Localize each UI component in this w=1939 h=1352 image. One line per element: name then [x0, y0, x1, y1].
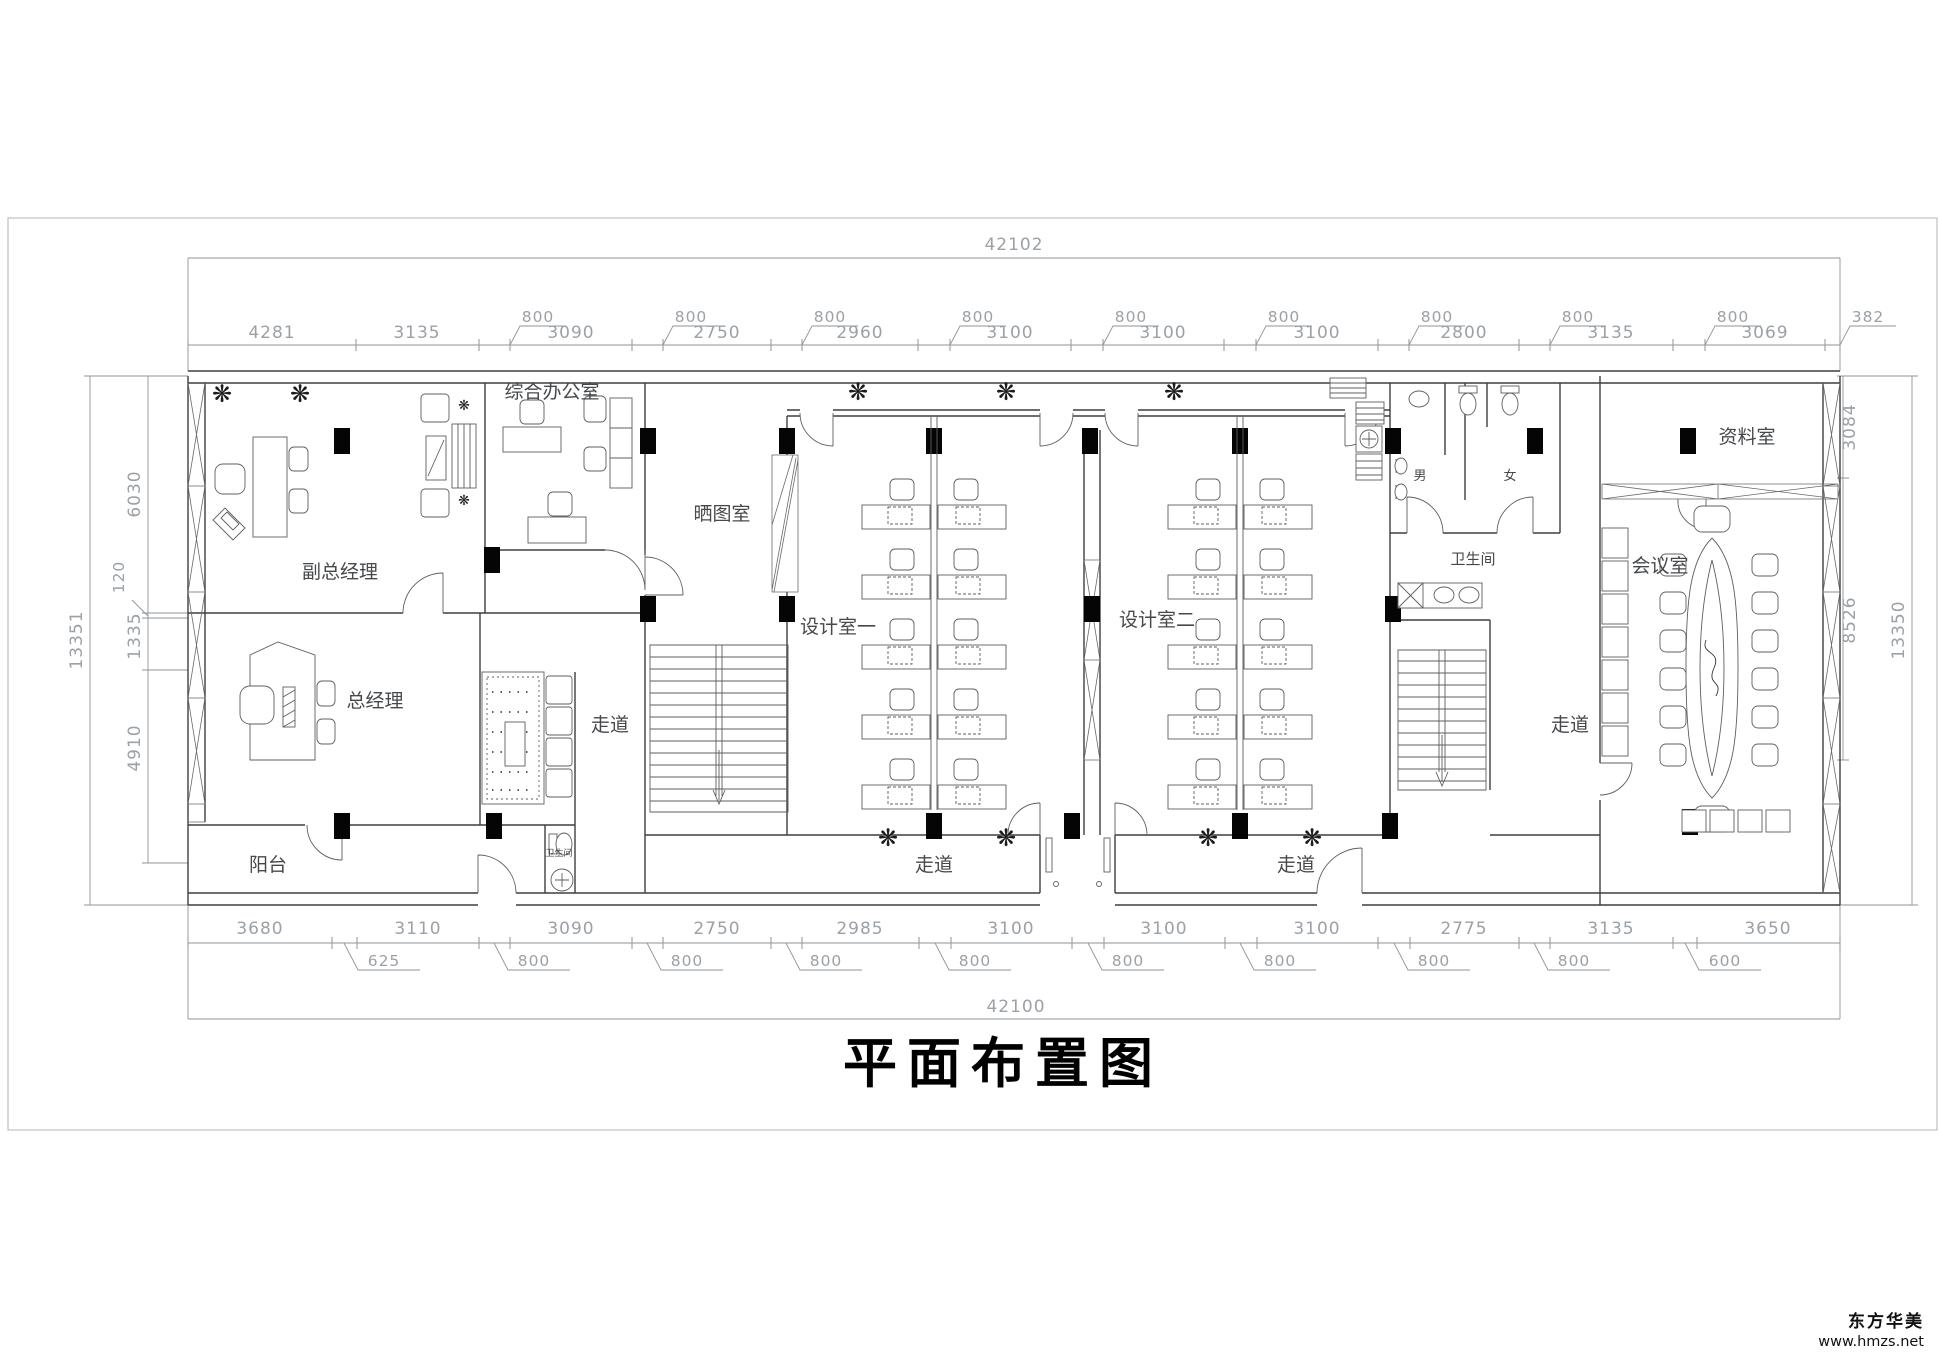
dim-label: 4281: [248, 323, 295, 343]
column: [779, 428, 795, 454]
dim-label: 2750: [693, 919, 740, 939]
workstation-pair: [862, 479, 1006, 529]
plant-icon: ❋: [996, 824, 1016, 852]
plant-icon: ❋: [212, 380, 232, 408]
dim-label: 42102: [984, 235, 1043, 255]
plant-icon: ❋: [1302, 824, 1322, 852]
plant-icon: ❋: [848, 378, 868, 406]
toilet-icon: [1501, 386, 1519, 415]
column: [1084, 596, 1100, 622]
dim-label: 1335: [125, 612, 145, 659]
door-arcs: [307, 413, 1706, 893]
dim-label: 4910: [125, 724, 145, 771]
dim-label: 800: [1264, 952, 1297, 970]
floor-plan-drawing: 42102 42100 4281 3135 800 3090 800 2750 …: [0, 0, 1939, 1352]
floor-plan-page: 42102 42100 4281 3135 800 3090 800 2750 …: [0, 0, 1939, 1352]
dim-label: 2960: [836, 323, 883, 343]
plant-icon: ❋: [458, 398, 470, 414]
room-label-corridor: 走道: [591, 714, 629, 736]
column: [484, 547, 500, 573]
plant-icon: ❋: [996, 378, 1016, 406]
room-label-male: 男: [1413, 469, 1426, 484]
dim-label: 3110: [394, 919, 441, 939]
column: [1527, 428, 1543, 454]
room-label-female: 女: [1503, 468, 1516, 484]
room-label-meeting: 会议室: [1631, 555, 1688, 577]
dim-label: 120: [110, 561, 128, 594]
room-label-restroom: 卫生间: [1450, 550, 1495, 568]
dim-label: 800: [671, 952, 704, 970]
dim-label: 3090: [547, 323, 594, 343]
dimension-layer: 42102 42100 4281 3135 800 3090 800 2750 …: [67, 235, 1918, 1019]
small-bath-fixtures: [549, 833, 573, 891]
dim-label: 3100: [1293, 323, 1340, 343]
dim-label: 625: [368, 952, 401, 970]
column: [1385, 428, 1401, 454]
column: [1064, 813, 1080, 839]
column: [926, 428, 942, 454]
workstation-pair: [1168, 479, 1312, 529]
page-title: 平面布置图: [843, 1034, 1163, 1094]
column: [640, 596, 656, 622]
room-label-archive: 资料室: [1718, 426, 1775, 448]
restroom-fixtures: [1330, 378, 1519, 608]
plant-icon: ❋: [1198, 824, 1218, 852]
dim-label: 3100: [986, 323, 1033, 343]
dim-label: 800: [1418, 952, 1451, 970]
entry-door-leaves: [1046, 838, 1110, 887]
workstation-pair: [862, 759, 1006, 809]
dim-label: 2985: [836, 919, 883, 939]
dim-label: 3100: [1139, 323, 1186, 343]
dim-label: 800: [1112, 952, 1145, 970]
dim-label: 3650: [1744, 919, 1791, 939]
toilet-icon: [1459, 386, 1477, 415]
dim-label: 13351: [67, 610, 87, 669]
column: [1232, 813, 1248, 839]
general-office-furniture: [503, 396, 632, 543]
dim-label: 800: [959, 952, 992, 970]
dim-label: 3100: [987, 919, 1034, 939]
watermark-url: www.hmzs.net: [1818, 1334, 1924, 1350]
dim-label: 3069: [1741, 323, 1788, 343]
plant-icon: ❋: [1164, 378, 1184, 406]
column: [640, 428, 656, 454]
room-label-balcony: 阳台: [249, 854, 287, 876]
room-labels: 副总经理 综合办公室 晒图室 设计室一 设计室二 资料室 会议室 总经理 阳台 …: [249, 381, 1776, 876]
column: [779, 596, 795, 622]
lounge-furniture: [482, 672, 572, 804]
column: [334, 428, 350, 454]
plant-icon: ❋: [878, 824, 898, 852]
room-label-general-office: 综合办公室: [504, 381, 599, 403]
room-label-gm: 总经理: [346, 690, 403, 712]
dim-label: 3135: [1587, 919, 1634, 939]
column: [1082, 428, 1098, 454]
room-label-design1: 设计室一: [800, 616, 876, 638]
plant-icon: ❋: [290, 380, 310, 408]
dim-label: 3680: [236, 919, 283, 939]
desk-cluster-design1: [862, 416, 1006, 810]
dim-label: 2750: [693, 323, 740, 343]
deputy-gm-furniture: [213, 394, 476, 540]
dim-label: 382: [1852, 308, 1885, 326]
column: [1382, 813, 1398, 839]
dim-label: 2775: [1440, 919, 1487, 939]
dim-label: 42100: [986, 997, 1045, 1017]
dim-label: 6030: [125, 470, 145, 517]
conference-furniture: [1602, 506, 1790, 832]
room-label-corridor: 走道: [1551, 714, 1589, 736]
workstation-pair: [862, 549, 1006, 599]
room-label-restroom-small: 卫生间: [545, 847, 572, 859]
column: [334, 813, 350, 839]
dim-label: 3135: [393, 323, 440, 343]
dim-label: 800: [810, 952, 843, 970]
sink-icon: [1409, 391, 1429, 407]
workstation-pair: [1168, 689, 1312, 739]
room-label-corridor: 走道: [915, 854, 953, 876]
dimension-ticks: [84, 339, 1918, 949]
column: [1680, 428, 1696, 454]
gm-furniture: [240, 642, 335, 760]
dim-label: 13350: [1889, 600, 1909, 659]
dim-label: 2800: [1440, 323, 1487, 343]
dim-label: 800: [518, 952, 551, 970]
dim-label: 800: [1558, 952, 1591, 970]
workstation-pair: [862, 689, 1006, 739]
dim-label: 3100: [1140, 919, 1187, 939]
plant-icon: ❋: [458, 493, 470, 509]
room-label-design2: 设计室二: [1119, 609, 1195, 631]
room-label-deputy-gm: 副总经理: [302, 561, 378, 583]
dim-label: 600: [1709, 952, 1742, 970]
stairs: [650, 645, 1486, 812]
urinal-icon: [1395, 484, 1407, 500]
column: [1232, 428, 1248, 454]
watermark-brand: 东方华美: [1848, 1311, 1924, 1332]
column: [486, 813, 502, 839]
workstation-pair: [862, 619, 1006, 669]
room-label-corridor: 走道: [1277, 854, 1315, 876]
dim-label: 3084: [1840, 403, 1860, 450]
dim-label: 8526: [1840, 596, 1860, 643]
column: [926, 813, 942, 839]
workstation-pair: [1168, 549, 1312, 599]
urinal-icon: [1395, 458, 1407, 474]
dim-label: 3100: [1293, 919, 1340, 939]
room-label-blueprint: 晒图室: [693, 503, 750, 525]
workstation-pair: [1168, 759, 1312, 809]
dim-label: 3135: [1587, 323, 1634, 343]
dim-label: 3090: [547, 919, 594, 939]
